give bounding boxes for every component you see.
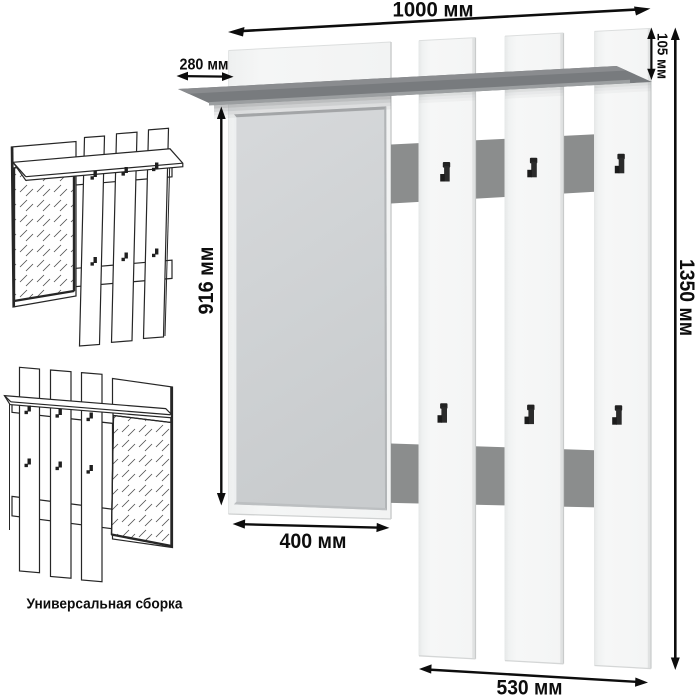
svg-text:1350 мм: 1350 мм	[675, 259, 698, 336]
svg-text:400 мм: 400 мм	[280, 530, 347, 553]
svg-text:105 мм: 105 мм	[654, 33, 671, 79]
svg-text:280 мм: 280 мм	[180, 57, 229, 74]
svg-text:1000 мм: 1000 мм	[393, 0, 474, 22]
svg-text:Универсальная сборка: Универсальная сборка	[27, 597, 184, 613]
svg-text:916 мм: 916 мм	[195, 247, 218, 315]
svg-text:530 мм: 530 мм	[497, 677, 563, 700]
